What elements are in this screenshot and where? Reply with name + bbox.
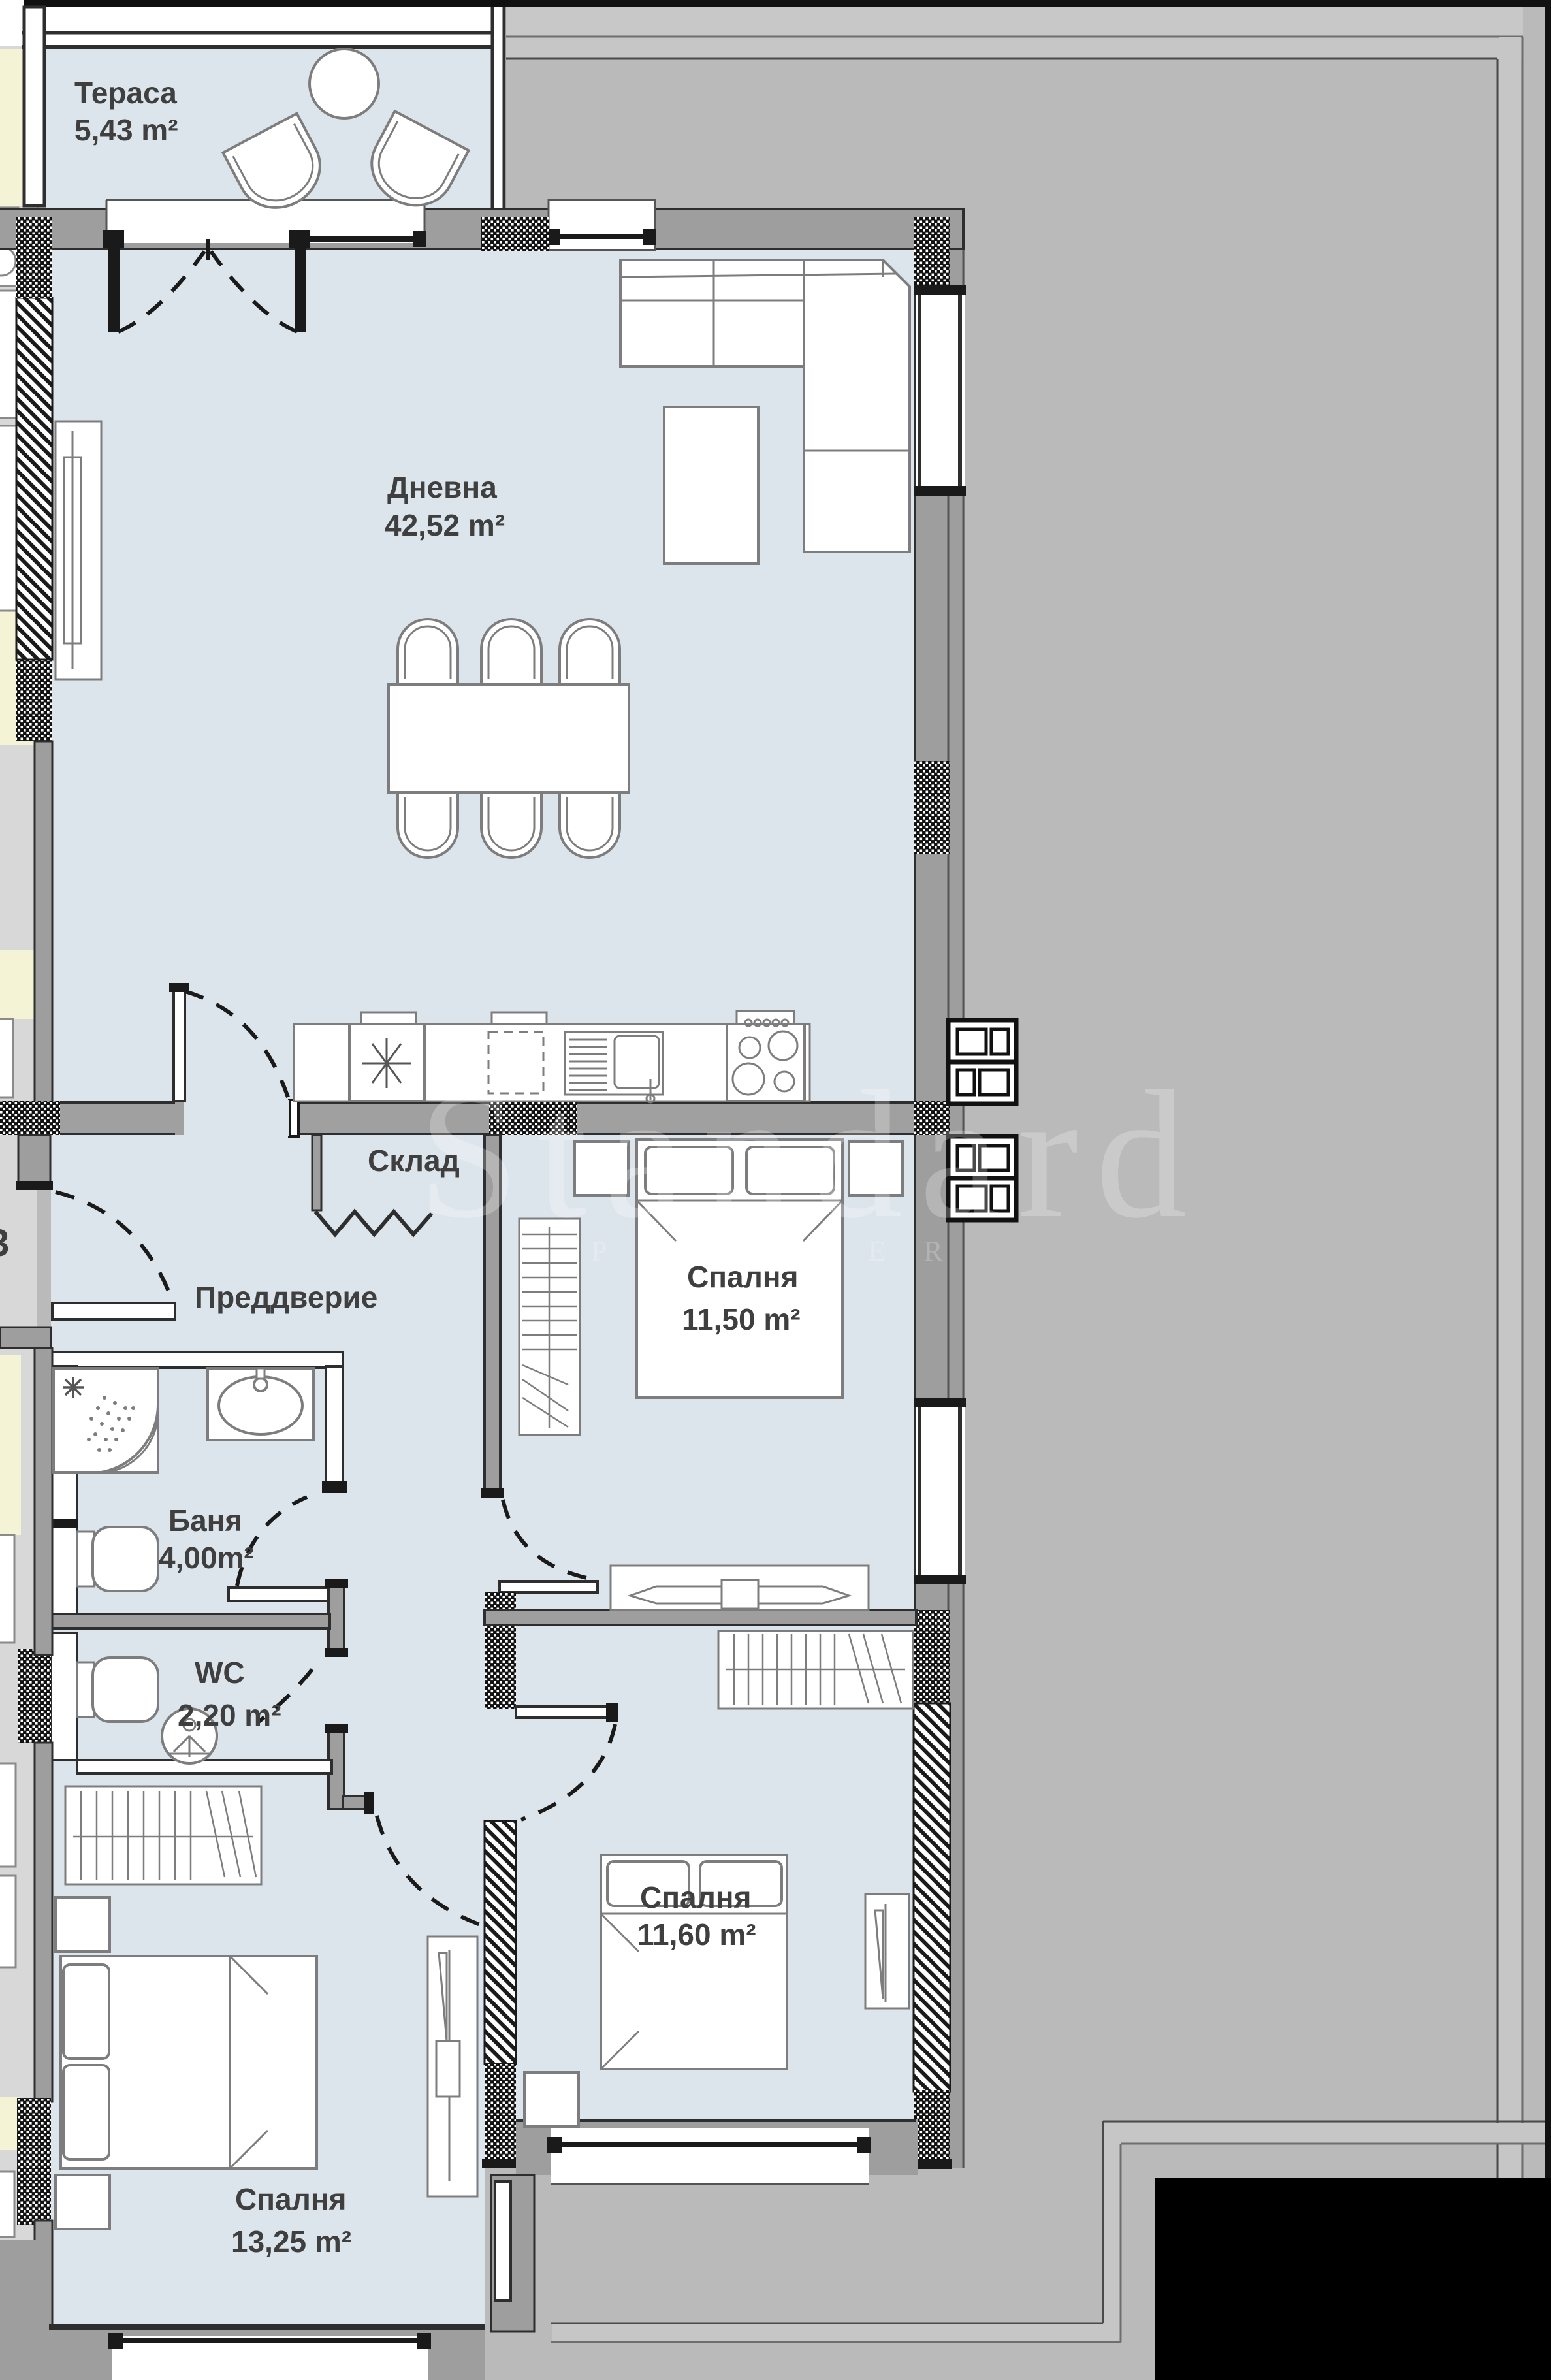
svg-text:Тераса: Тераса <box>74 76 177 110</box>
svg-text:11,60 m²: 11,60 m² <box>637 1918 756 1952</box>
svg-text:Standard: Standard <box>418 1053 1204 1256</box>
svg-text:2,20 m²: 2,20 m² <box>178 1698 281 1732</box>
svg-text:13,25 m²: 13,25 m² <box>231 2225 351 2259</box>
svg-text:4,00m²: 4,00m² <box>159 1541 254 1575</box>
svg-text:Преддверие: Преддверие <box>195 1280 377 1314</box>
svg-text:42,52 m²: 42,52 m² <box>385 508 505 542</box>
svg-text:Спалня: Спалня <box>235 2182 346 2216</box>
svg-text:Спалня: Спалня <box>687 1260 798 1294</box>
svg-text:WC: WC <box>195 1656 245 1690</box>
svg-text:11,50 m²: 11,50 m² <box>682 1302 801 1336</box>
svg-text:3: 3 <box>0 1222 9 1264</box>
svg-text:Склад: Склад <box>368 1144 460 1178</box>
svg-text:5,43 m²: 5,43 m² <box>74 113 178 147</box>
svg-text:Дневна: Дневна <box>387 470 497 504</box>
svg-text:Баня: Баня <box>168 1504 242 1537</box>
svg-text:Спалня: Спалня <box>640 1880 751 1914</box>
